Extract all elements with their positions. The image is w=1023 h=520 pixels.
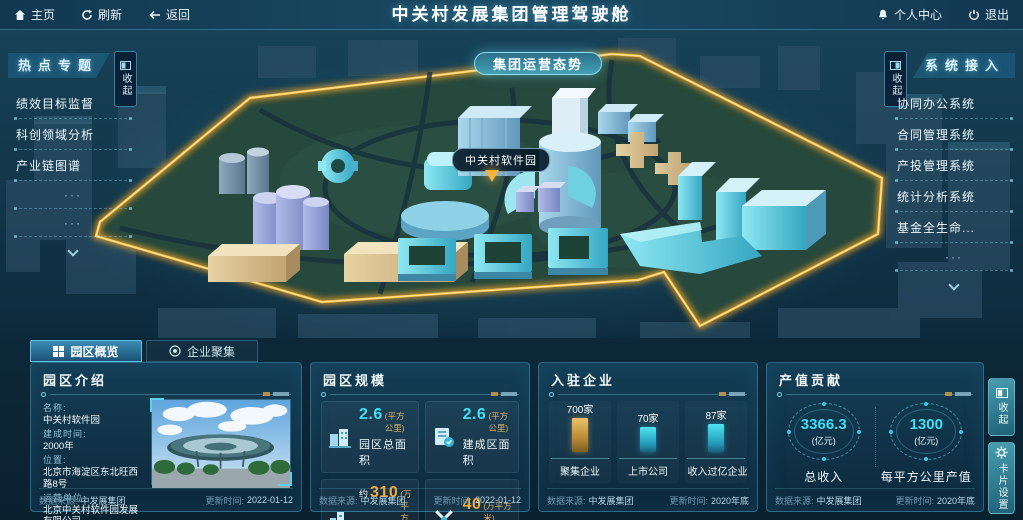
gauge-value: 1300	[910, 416, 943, 433]
updated-value: 2020年底	[937, 494, 975, 507]
chevron-down-icon[interactable]	[948, 279, 959, 290]
tab-label: 企业聚集	[187, 343, 235, 360]
intro-fields: 名称: 中关村软件园 建成时间: 2000年 位置: 北京市海淀区东北旺西路8号…	[43, 399, 143, 485]
panel-park-scale: 园区规模 2.6 (平方公里) 园区总面积	[310, 362, 530, 512]
bottom-section: 园区概览 企业聚集 园区介绍 名称: 中关村软件园 建成时间: 2000年 位置…	[0, 338, 1023, 520]
cluster-icon	[169, 345, 181, 357]
stat-park-total-area: 2.6 (平方公里) 园区总面积	[321, 401, 419, 473]
source-label: 数据来源:	[775, 494, 814, 507]
card-settings-button[interactable]: 卡片设置	[988, 442, 1015, 514]
back-button[interactable]: 返回	[148, 6, 190, 23]
map-marker-icon[interactable]	[485, 170, 499, 182]
updated-label: 更新时间:	[895, 494, 934, 507]
stat-name: 园区总面积	[359, 436, 412, 468]
systems-list: 协同办公系统 合同管理系统 产投管理系统 统计分析系统 基金全生命... ···	[895, 88, 1013, 289]
bar-listed-companies	[640, 427, 656, 452]
field-label: 建成时间:	[43, 427, 143, 440]
stat-value: 2.6	[359, 406, 383, 424]
collapse-label: 收起	[994, 402, 1009, 426]
bar-aggregated-enterprises	[572, 418, 588, 452]
hot-topic-item[interactable]: 产业链图谱	[14, 150, 132, 181]
system-item[interactable]: 协同办公系统	[895, 88, 1013, 119]
header-decoration	[777, 391, 973, 398]
cards-collapse-button[interactable]: 收起	[988, 378, 1015, 436]
map-marker-label-text: 中关村软件园	[465, 155, 537, 167]
gauge-total-revenue: 3366.3 (亿元) 总收入	[773, 399, 875, 485]
source-value: 中发展集团	[81, 494, 126, 507]
header-decoration	[549, 391, 747, 398]
panel-enterprises: 入驻企业 700家 聚集企业 70家 上市公司 87家 收入过亿企业	[538, 362, 758, 512]
field-label: 名称:	[43, 401, 143, 414]
updated-value: 2020年底	[711, 494, 749, 507]
topbar: 主页 刷新 返回 中关村发展集团管理驾驶舱 个人中心	[0, 0, 1023, 30]
updated-label: 更新时间:	[669, 494, 708, 507]
source-value: 中发展集团	[817, 494, 862, 507]
gauge-output-per-sqkm: 1300 (亿元) 每平方公里产值	[876, 399, 978, 485]
panel-title: 入驻企业	[539, 363, 757, 391]
city-3d-map[interactable]	[0, 30, 1023, 340]
collapse-panel-icon	[996, 388, 1008, 398]
hot-topic-item-empty: ···	[14, 181, 132, 209]
gauge-unit: (亿元)	[812, 434, 836, 447]
bar-column: 87家 收入过亿企业	[685, 401, 747, 483]
tab-park-overview[interactable]: 园区概览	[30, 340, 142, 362]
home-label: 主页	[31, 6, 55, 23]
panel-title: 园区介绍	[31, 363, 301, 391]
field-label: 位置:	[43, 453, 143, 466]
system-item[interactable]: 基金全生命...	[895, 212, 1013, 243]
gauge-name: 总收入	[804, 468, 843, 485]
panel-footer: 数据来源: 中发展集团 更新时间: 2022-01-12	[319, 488, 521, 511]
map-area: 集团运营态势 中关村软件园 热点专题 收起 绩效目标监督 科创领域分析 产业链图…	[0, 30, 1023, 340]
bar-column: 70家 上市公司	[617, 401, 679, 483]
panel-footer: 数据来源: 中发展集团 更新时间: 2022-01-12	[39, 488, 293, 511]
topbar-left: 主页 刷新 返回	[14, 6, 190, 23]
refresh-label: 刷新	[98, 6, 122, 23]
collapse-panel-icon	[890, 61, 901, 70]
chevron-down-icon[interactable]	[67, 245, 78, 256]
system-item[interactable]: 产投管理系统	[895, 150, 1013, 181]
system-item-empty: ···	[895, 243, 1013, 271]
logout-label: 退出	[985, 6, 1009, 23]
bar-over-100m-revenue	[708, 424, 724, 452]
system-item[interactable]: 统计分析系统	[895, 181, 1013, 212]
header-decoration	[41, 391, 291, 398]
bar-category-label: 上市公司	[619, 458, 676, 483]
profile-label: 个人中心	[894, 6, 942, 23]
updated-value: 2022-01-12	[247, 495, 293, 505]
systems-header: 系统接入	[913, 53, 1015, 78]
map-marker-label[interactable]: 中关村软件园	[452, 148, 550, 172]
stat-name: 建成区面积	[463, 436, 512, 468]
hot-topic-item[interactable]: 绩效目标监督	[14, 88, 132, 119]
bar-column: 700家 聚集企业	[549, 401, 611, 483]
app-title: 中关村发展集团管理驾驶舱	[392, 0, 632, 30]
enterprises-bar-chart: 700家 聚集企业 70家 上市公司 87家 收入过亿企业	[549, 401, 747, 483]
panel-footer: 数据来源: 中发展集团 更新时间: 2020年底	[775, 488, 975, 511]
home-button[interactable]: 主页	[14, 6, 55, 23]
field-value: 2000年	[43, 441, 143, 453]
hot-topic-item-empty: ···	[14, 209, 132, 237]
updated-label: 更新时间:	[433, 494, 472, 507]
overview-button[interactable]: 集团运营态势	[474, 52, 602, 75]
park-photo	[151, 399, 291, 485]
gauge-ring: 1300 (亿元)	[890, 403, 962, 460]
power-icon	[968, 9, 980, 21]
field-value: 北京市海淀区东北旺西路8号	[43, 467, 143, 491]
hot-topic-item[interactable]: 科创领域分析	[14, 119, 132, 150]
panel-footer: 数据来源: 中发展集团 更新时间: 2020年底	[547, 488, 749, 511]
logout-button[interactable]: 退出	[968, 6, 1009, 23]
panel-title: 产值贡献	[767, 363, 983, 391]
gauge-ring: 3366.3 (亿元)	[788, 403, 860, 460]
bar-value-label: 87家	[705, 407, 726, 422]
dashboard: 主页 刷新 返回 中关村发展集团管理驾驶舱 个人中心	[0, 0, 1023, 520]
source-label: 数据来源:	[319, 494, 358, 507]
bell-icon	[877, 9, 889, 21]
header-decoration	[321, 391, 519, 398]
refresh-icon	[81, 9, 93, 21]
gear-icon	[995, 446, 1008, 459]
bar-category-label: 聚集企业	[551, 458, 608, 483]
panel-park-intro: 园区介绍 名称: 中关村软件园 建成时间: 2000年 位置: 北京市海淀区东北…	[30, 362, 302, 512]
gauge-value: 3366.3	[801, 416, 847, 433]
topbar-right: 个人中心 退出	[877, 6, 1009, 23]
source-label: 数据来源:	[39, 494, 78, 507]
gauge-unit: (亿元)	[914, 434, 938, 447]
card-settings-label: 卡片设置	[994, 463, 1009, 511]
stat-value: 2.6	[463, 406, 487, 424]
stat-unit: (平方公里)	[385, 410, 412, 434]
system-item[interactable]: 合同管理系统	[895, 119, 1013, 150]
field-value: 中关村软件园	[43, 415, 143, 427]
panel-output-value: 产值贡献 3366.3 (亿元) 总收入 1300 (亿元)	[766, 362, 984, 512]
source-value: 中发展集团	[589, 494, 634, 507]
hot-topics-header: 热点专题	[8, 53, 110, 78]
source-value: 中发展集团	[361, 494, 406, 507]
park-area-icon	[328, 425, 352, 449]
back-label: 返回	[166, 6, 190, 23]
source-label: 数据来源:	[547, 494, 586, 507]
output-gauges: 3366.3 (亿元) 总收入 1300 (亿元) 每平方公里产值	[773, 399, 977, 485]
profile-button[interactable]: 个人中心	[877, 6, 942, 23]
refresh-button[interactable]: 刷新	[81, 6, 122, 23]
bar-value-label: 70家	[637, 410, 658, 425]
built-area-icon	[432, 425, 456, 449]
panel-title: 园区规模	[311, 363, 529, 391]
stat-unit: (平方公里)	[488, 410, 512, 434]
tab-label: 园区概览	[70, 343, 118, 360]
bar-category-label: 收入过亿企业	[687, 458, 744, 483]
hot-topics-list: 绩效目标监督 科创领域分析 产业链图谱 ··· ···	[14, 88, 132, 255]
grid-icon	[53, 346, 64, 357]
gauge-name: 每平方公里产值	[881, 468, 972, 485]
collapse-panel-icon	[120, 61, 131, 70]
bar-value-label: 700家	[567, 401, 594, 416]
tab-enterprise-cluster[interactable]: 企业聚集	[146, 340, 258, 362]
scale-stats: 2.6 (平方公里) 园区总面积 2.6 (平方公里) 建成区面积	[321, 401, 519, 483]
home-icon	[14, 9, 26, 21]
updated-value: 2022-01-12	[475, 495, 521, 505]
updated-label: 更新时间:	[205, 494, 244, 507]
stat-built-area: 2.6 (平方公里) 建成区面积	[425, 401, 519, 473]
back-arrow-icon	[148, 9, 161, 21]
